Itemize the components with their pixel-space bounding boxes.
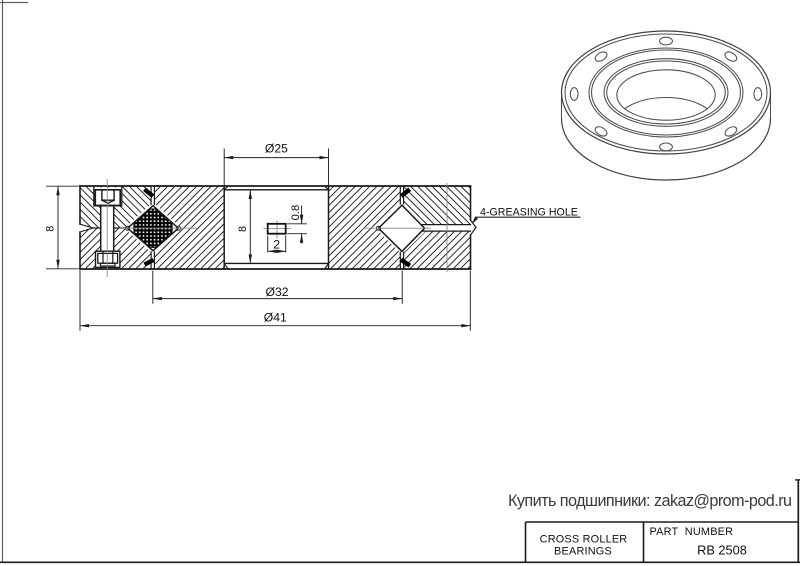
svg-text:CROSS ROLLER: CROSS ROLLER: [540, 534, 628, 546]
svg-text:8: 8: [237, 226, 249, 232]
svg-text:Ø25: Ø25: [265, 142, 288, 156]
svg-text:Купить подшипники: zakaz@prom-: Купить подшипники: zakaz@prom-pod.ru: [508, 492, 792, 510]
svg-text:Ø32: Ø32: [265, 285, 288, 299]
svg-text:Ø41: Ø41: [264, 311, 287, 325]
svg-text:BEARINGS: BEARINGS: [554, 546, 612, 558]
svg-text:PART NUMBER: PART NUMBER: [650, 526, 734, 538]
svg-text:RB 2508: RB 2508: [697, 543, 747, 558]
svg-text:0.8: 0.8: [290, 205, 302, 221]
svg-text:4-GREASING HOLE: 4-GREASING HOLE: [480, 206, 578, 218]
svg-text:2: 2: [273, 238, 280, 252]
svg-text:8: 8: [44, 226, 56, 232]
